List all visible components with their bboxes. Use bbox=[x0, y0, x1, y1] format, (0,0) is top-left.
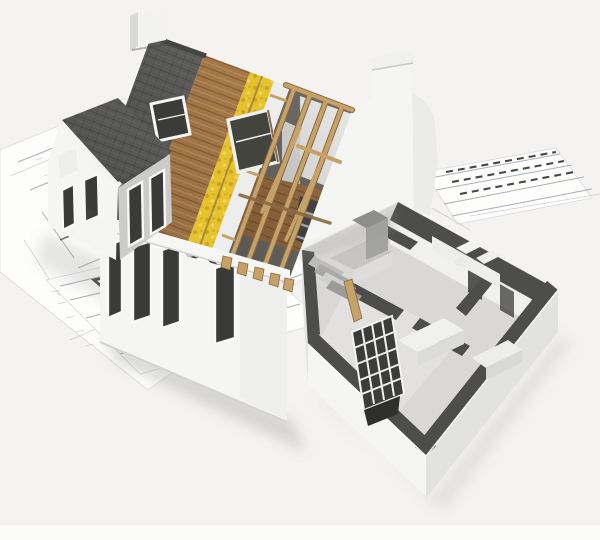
front-wall-shade bbox=[240, 270, 287, 422]
wing-window-1 bbox=[128, 182, 143, 246]
front-window-1 bbox=[133, 241, 151, 322]
chimney-front bbox=[138, 7, 166, 46]
architectural-render bbox=[0, 0, 600, 540]
roof-window bbox=[151, 97, 190, 141]
wing-window-2 bbox=[150, 170, 165, 234]
front-window-3 bbox=[215, 262, 235, 344]
wing-window-3 bbox=[62, 184, 75, 230]
front-window-2 bbox=[162, 244, 180, 328]
render-stage bbox=[0, 0, 600, 540]
bottom-strip bbox=[0, 524, 600, 540]
chimney-side bbox=[130, 12, 138, 52]
dormer-window bbox=[228, 110, 278, 172]
